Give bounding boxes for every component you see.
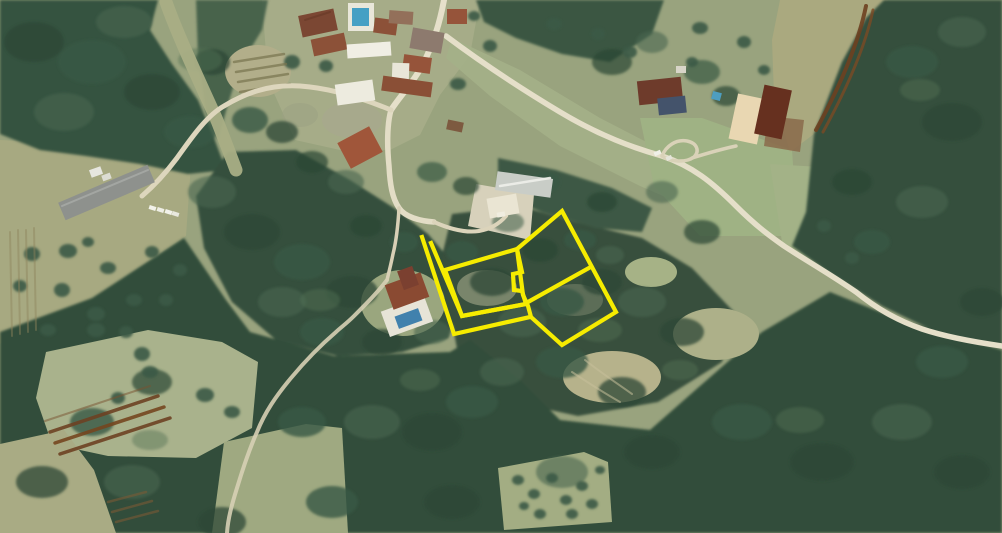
tree <box>737 36 751 48</box>
tree-canopy-blob <box>274 244 330 280</box>
tree <box>817 220 831 232</box>
tree <box>560 495 572 505</box>
tree-canopy-blob <box>598 377 646 407</box>
tree-canopy-blob <box>400 369 440 391</box>
tree <box>145 246 159 258</box>
tree <box>100 262 116 274</box>
tree-canopy-blob <box>480 358 524 386</box>
tree <box>468 11 480 21</box>
tree <box>126 294 142 306</box>
tree <box>845 252 859 264</box>
tree-canopy-blob <box>266 121 298 143</box>
tree-canopy-blob <box>646 181 678 203</box>
tree-canopy-blob <box>232 107 268 133</box>
clearing <box>322 102 382 138</box>
clearing <box>625 257 677 287</box>
tree-canopy-blob <box>224 214 280 250</box>
tree-canopy-blob <box>4 22 64 62</box>
tree <box>595 466 605 474</box>
tree <box>512 475 524 485</box>
tree-canopy-blob <box>328 170 364 194</box>
satellite-map-canvas[interactable] <box>0 0 1002 533</box>
tree <box>87 323 105 337</box>
tree-canopy-blob <box>300 289 340 311</box>
tree-canopy-blob <box>662 360 698 380</box>
tree <box>519 502 529 510</box>
tree-canopy-blob <box>350 215 382 237</box>
tree-canopy-blob <box>916 346 968 378</box>
tree-canopy-blob <box>258 287 306 317</box>
tree-canopy-blob <box>618 287 666 317</box>
tree <box>546 473 558 483</box>
tree-canopy-blob <box>587 192 617 212</box>
tree <box>40 324 56 336</box>
tree <box>546 18 562 30</box>
tree-canopy-blob <box>104 465 160 499</box>
tree-canopy-blob <box>596 246 624 264</box>
tree-canopy-blob <box>922 103 982 141</box>
tree-canopy-blob <box>132 430 168 450</box>
tree-canopy-blob <box>16 466 68 498</box>
tree <box>142 366 158 378</box>
tree <box>591 28 605 40</box>
tree-canopy-blob <box>624 435 680 469</box>
tree-canopy-blob <box>188 176 236 208</box>
tree <box>566 509 578 519</box>
tree <box>54 283 70 297</box>
tree-canopy-blob <box>684 220 720 244</box>
tree <box>686 57 698 67</box>
tree-canopy-blob <box>636 31 668 53</box>
tree <box>758 65 770 75</box>
tree-canopy-blob <box>306 486 358 518</box>
tree <box>623 46 637 58</box>
tree-canopy-blob <box>344 405 400 439</box>
tree <box>87 307 105 321</box>
tree-canopy-blob <box>660 318 704 346</box>
tree <box>528 489 540 499</box>
tree <box>534 509 546 519</box>
tree-canopy-blob <box>872 404 932 440</box>
tree <box>134 347 150 361</box>
tree-canopy-blob <box>470 268 514 296</box>
tree <box>284 55 300 69</box>
tree-canopy-blob <box>124 74 180 110</box>
tree-canopy-blob <box>896 186 948 218</box>
tree-canopy-blob <box>424 485 480 519</box>
building <box>389 10 414 25</box>
tree <box>159 294 173 306</box>
tree-canopy-blob <box>712 404 772 440</box>
tree-canopy-blob <box>402 413 462 451</box>
tree <box>586 499 598 509</box>
tree-canopy-blob <box>296 151 328 173</box>
tree <box>59 244 77 258</box>
tree-canopy-blob <box>446 386 498 418</box>
tree <box>82 237 94 247</box>
tree <box>483 40 497 52</box>
building <box>447 9 467 24</box>
tree-canopy-blob <box>58 40 126 84</box>
tree <box>319 60 333 72</box>
tree-canopy-blob <box>417 162 447 182</box>
tree <box>224 406 240 418</box>
tree-canopy-blob <box>938 17 986 47</box>
tree-canopy-blob <box>34 93 94 131</box>
tree-canopy-blob <box>96 6 152 38</box>
tree-canopy-blob <box>900 79 940 101</box>
tree-canopy-blob <box>536 346 588 378</box>
satellite-map-viewport[interactable] <box>0 0 1002 533</box>
tree <box>576 481 588 491</box>
tree <box>196 388 214 402</box>
tree <box>692 22 708 34</box>
building <box>676 66 686 73</box>
tree-canopy-blob <box>453 177 479 195</box>
building <box>657 96 687 116</box>
tree-canopy-blob <box>960 288 1002 316</box>
tree-canopy-blob <box>886 46 938 78</box>
tree-canopy-blob <box>790 443 854 481</box>
tree-canopy-blob <box>776 407 824 433</box>
tree <box>173 264 187 276</box>
tree <box>119 326 133 338</box>
tree-canopy-blob <box>854 230 890 254</box>
building <box>352 8 369 26</box>
tree-canopy-blob <box>278 407 326 437</box>
tree-canopy-blob <box>934 455 990 489</box>
tree-canopy-blob <box>832 169 872 195</box>
tree <box>450 78 466 90</box>
